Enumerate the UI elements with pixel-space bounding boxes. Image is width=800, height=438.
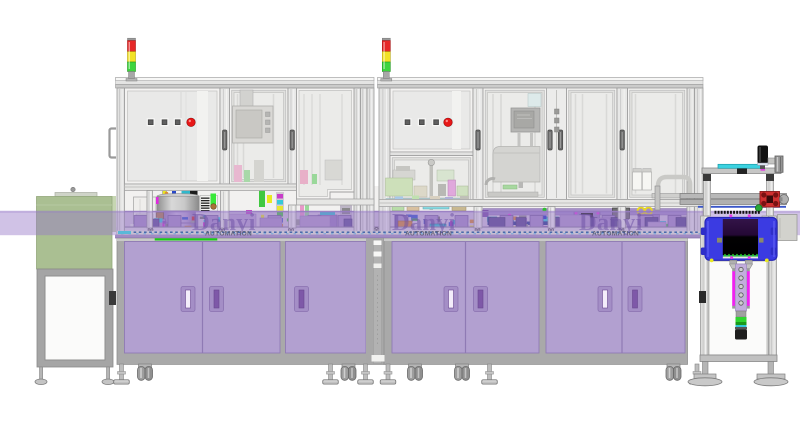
svg-text:AUTOMATION: AUTOMATION	[592, 231, 639, 238]
svg-text:AUTOMATION: AUTOMATION	[405, 231, 452, 238]
svg-text:AUTOMATION: AUTOMATION	[205, 231, 252, 238]
